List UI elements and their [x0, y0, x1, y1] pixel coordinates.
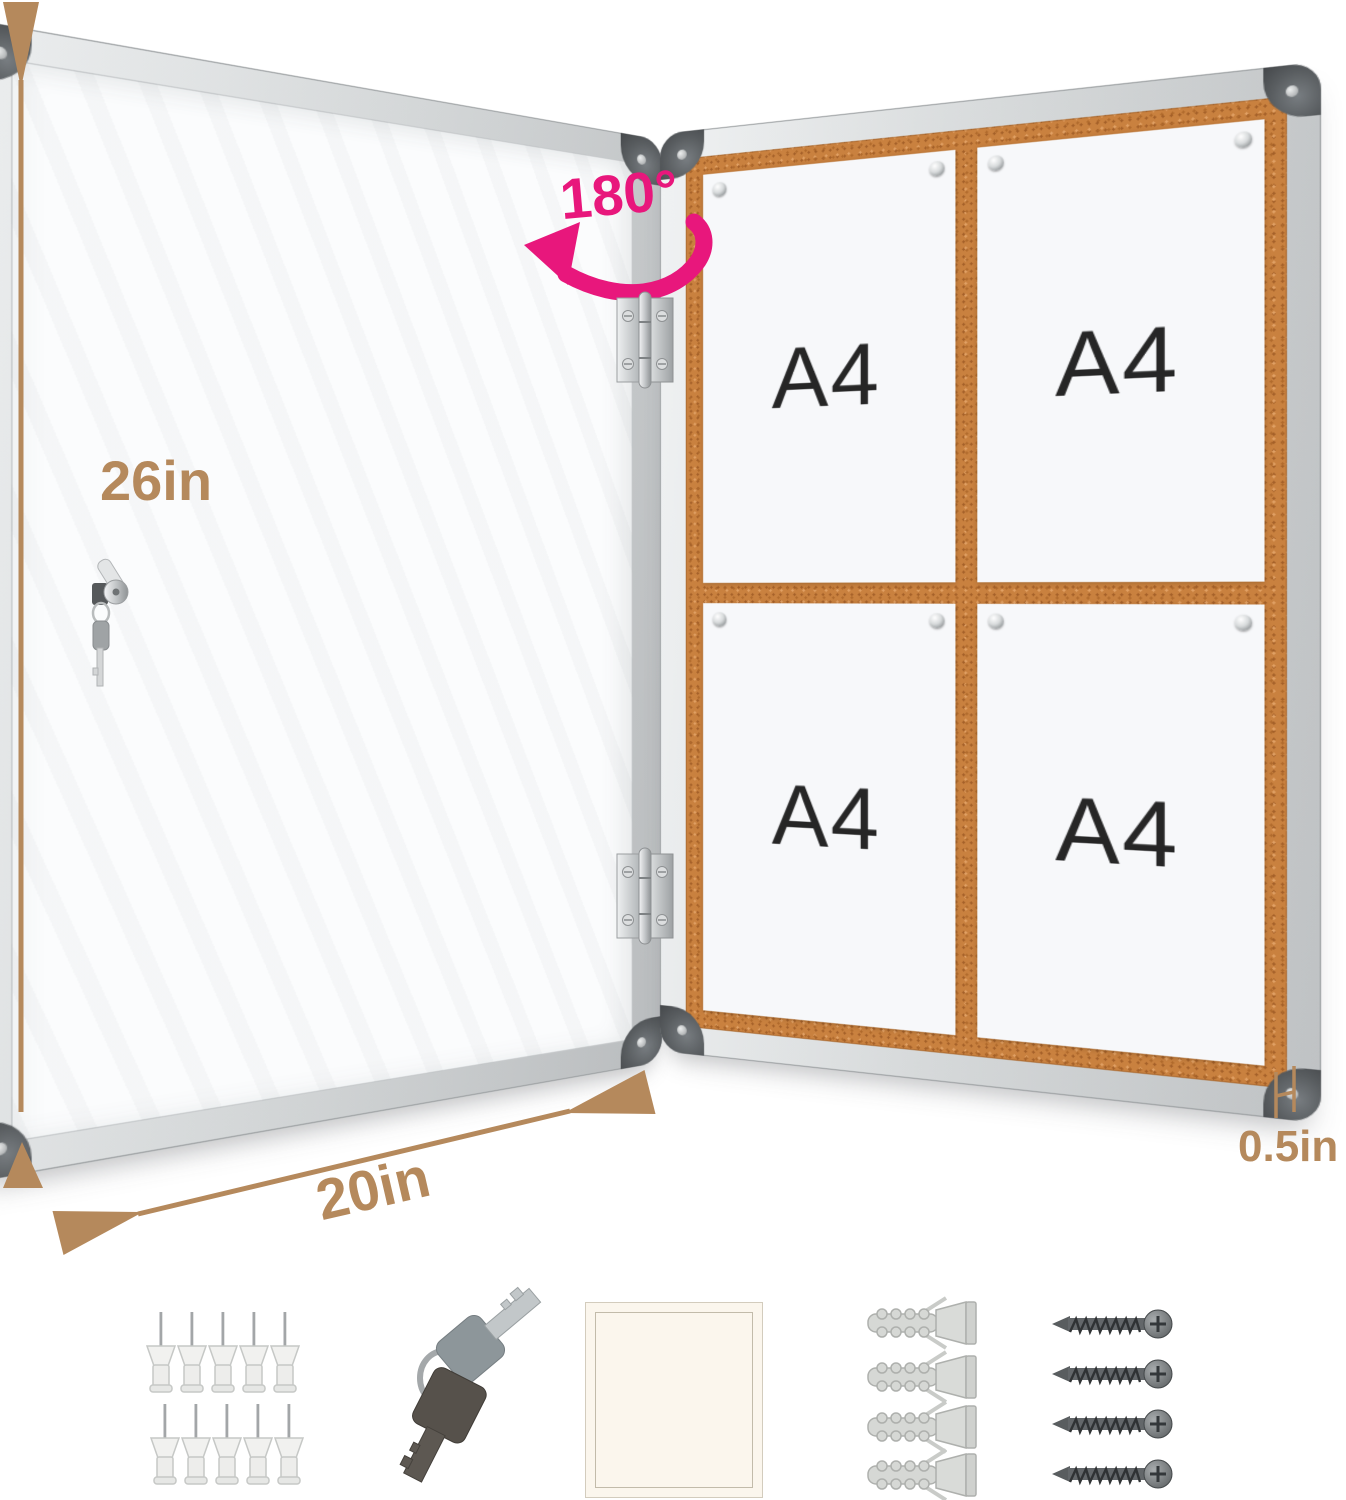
width-label: 20in — [310, 1144, 436, 1234]
wall-anchors-set — [868, 1298, 976, 1500]
push-pin-icon — [988, 155, 1003, 172]
push-pin-icon — [1235, 614, 1252, 630]
height-label: 26in — [100, 448, 212, 513]
adhesive-pad — [585, 1302, 763, 1498]
push-pin-icon — [930, 613, 945, 628]
screws-set — [1052, 1310, 1172, 1488]
push-pin-icon — [930, 160, 945, 176]
paper-size-label: A4 — [1055, 304, 1180, 418]
a4-paper: A4 — [703, 150, 955, 583]
cork-surface: A4 A4 A4 A4 — [686, 96, 1287, 1088]
push-pin-icon — [713, 182, 727, 197]
paper-size-label: A4 — [1055, 776, 1180, 890]
keys-icon — [387, 1275, 552, 1490]
open-angle-label: 180° — [557, 157, 680, 233]
a4-paper: A4 — [703, 603, 955, 1036]
a4-paper: A4 — [977, 119, 1264, 581]
cork-bulletin-board: A4 A4 A4 A4 — [660, 62, 1321, 1124]
push-pin-icon — [713, 612, 727, 626]
depth-label: 0.5in — [1238, 1122, 1338, 1172]
push-pins-set — [147, 1312, 303, 1484]
a4-paper: A4 — [977, 603, 1264, 1065]
push-pin-icon — [988, 613, 1003, 628]
paper-size-label: A4 — [772, 323, 881, 429]
door-glass — [11, 60, 632, 1143]
product-image: A4 A4 A4 A4 — [0, 0, 1346, 1500]
paper-size-label: A4 — [772, 764, 881, 870]
push-pin-icon — [1235, 131, 1252, 149]
